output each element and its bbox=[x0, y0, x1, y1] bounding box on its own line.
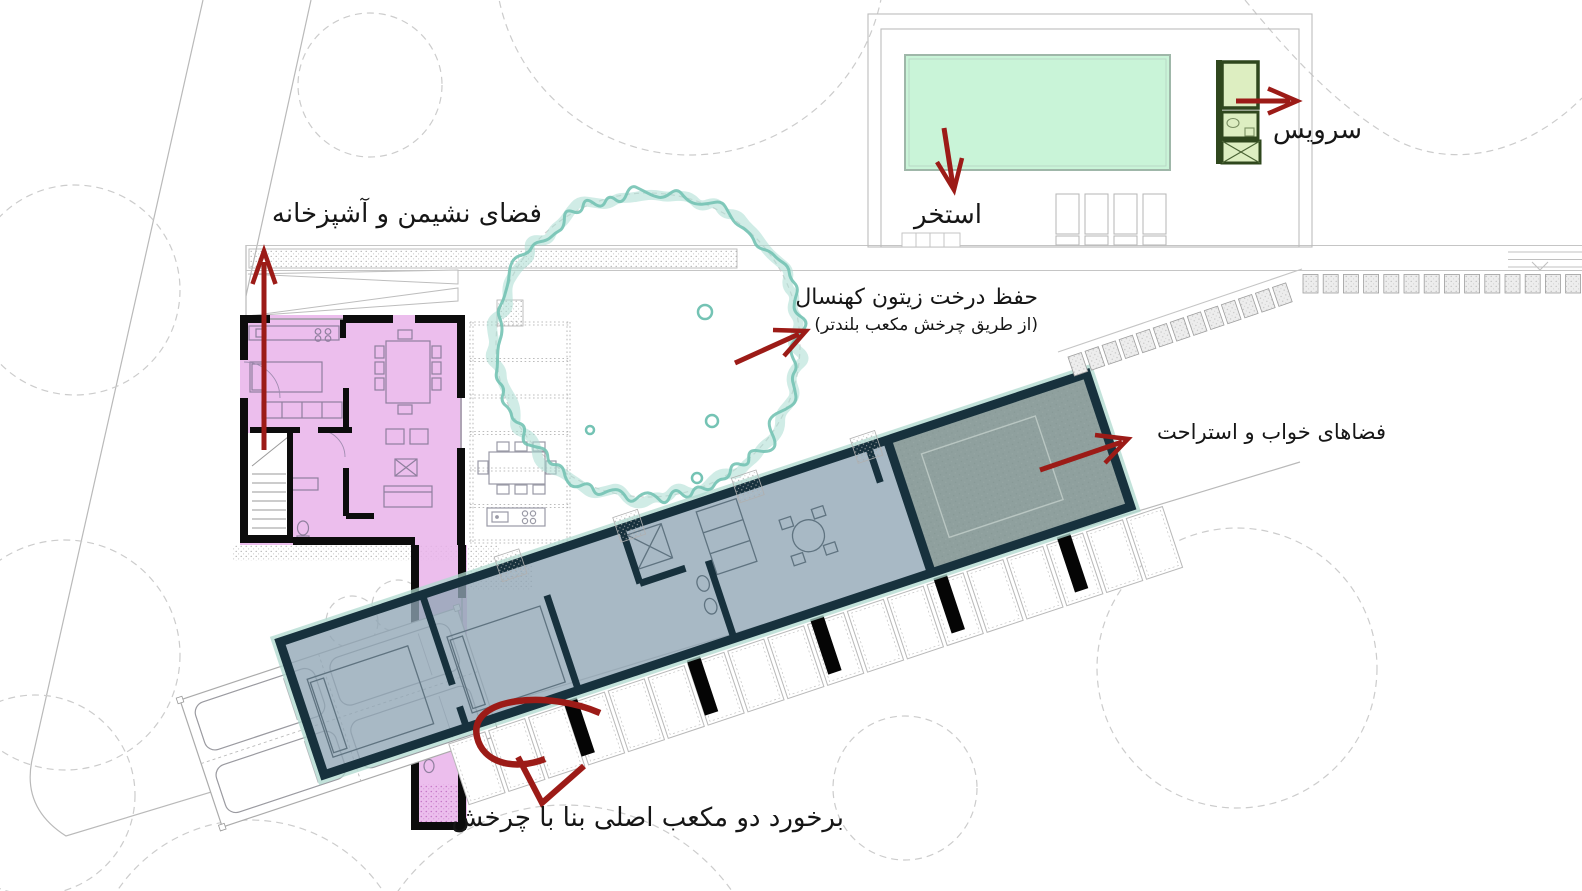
label-olive-sub: (از طریق چرخش مکعب بلندتر) bbox=[816, 316, 1038, 336]
label-living-kitchen: فضای نشیمن و آشپزخانه bbox=[268, 200, 542, 230]
stairs-right-edge bbox=[1508, 252, 1582, 270]
swimming-pool bbox=[905, 55, 1170, 170]
gravel-strip bbox=[249, 249, 737, 268]
label-pool: استخر bbox=[898, 201, 982, 231]
label-service: سرویس bbox=[1266, 116, 1362, 146]
label-sleeping-rest: فضاهای خواب و استراحت bbox=[1146, 420, 1386, 444]
service-cabin bbox=[1216, 60, 1260, 164]
label-collision: برخورد دو مکعب اصلی بنا با چرخش bbox=[464, 804, 844, 834]
stepping-stones-horizontal bbox=[1303, 275, 1581, 294]
sun-loungers bbox=[1056, 194, 1166, 245]
architectural-site-plan: فضای نشیمن و آشپزخانه حفظ درخت زیتون کهن… bbox=[0, 0, 1582, 891]
arrow-up-right-olive-icon bbox=[735, 330, 806, 363]
label-olive-title: حفظ درخت زیتون کهنسال bbox=[820, 285, 1038, 310]
olive-tree bbox=[491, 187, 806, 504]
stepping-stones-diagonal bbox=[1068, 283, 1292, 376]
pool-steps bbox=[902, 233, 960, 247]
ramp bbox=[248, 270, 458, 316]
